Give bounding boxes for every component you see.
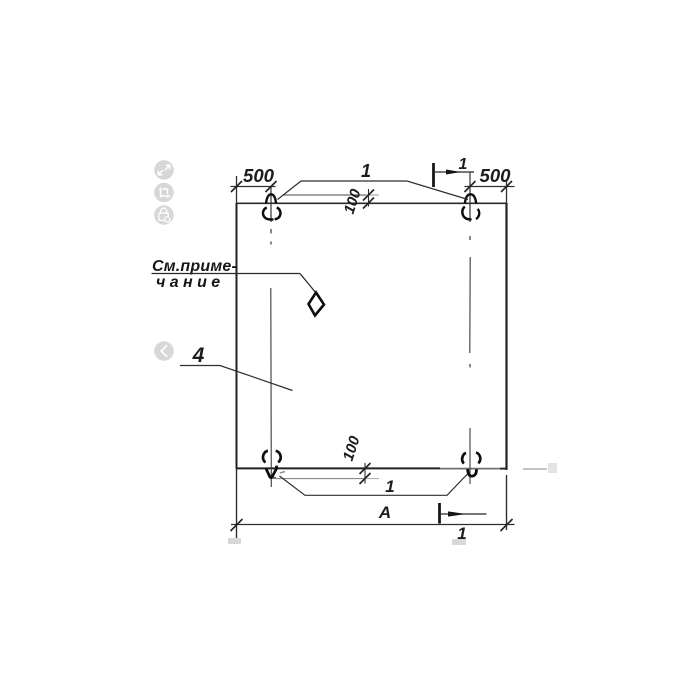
svg-text:1: 1 <box>459 156 468 173</box>
svg-text:500: 500 <box>480 166 511 186</box>
svg-text:1: 1 <box>361 161 371 181</box>
svg-text:А: А <box>378 503 391 522</box>
svg-text:500: 500 <box>243 166 274 186</box>
svg-text:См.приме-: См.приме- <box>152 258 237 275</box>
svg-text:1: 1 <box>385 477 394 496</box>
svg-text:чание: чание <box>156 274 225 291</box>
svg-text:4: 4 <box>192 344 205 367</box>
